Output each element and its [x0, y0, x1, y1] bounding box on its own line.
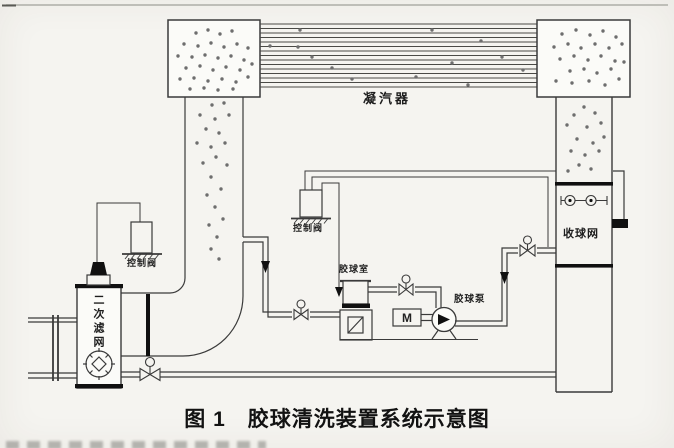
- screen-shaft: [561, 196, 607, 206]
- actuator-head: [90, 262, 107, 275]
- cutoff-text-remnant: [6, 441, 266, 448]
- scan-artifact-topline: [2, 5, 668, 6]
- pump-suction-pipe: [455, 236, 556, 326]
- ball-pump-label: 胶球泵: [454, 295, 486, 305]
- screen-signal-lines: [305, 171, 556, 247]
- control-valve-left-label: 控制阀: [127, 259, 157, 268]
- ball-injection-pipe: [243, 237, 340, 321]
- ball-screen-label: 收球网: [563, 229, 599, 240]
- chamber-outlet-pipe: [368, 275, 441, 308]
- motor-letter: M: [393, 312, 421, 324]
- condenser-label: 凝汽器: [363, 92, 411, 105]
- condenser-tube-bundle: [260, 24, 537, 87]
- secondary-filter-label: 二次滤网: [92, 294, 103, 350]
- flow-arrow-down: [335, 287, 343, 297]
- flow-arrow-down: [500, 272, 509, 284]
- control-valve-mid-label: 控制阀: [293, 224, 323, 233]
- inlet-pipes-left: [28, 315, 77, 381]
- flow-arrow-down: [261, 261, 270, 273]
- condenser-right-waterbox: [537, 20, 630, 97]
- condenser-left-waterbox: [168, 20, 260, 97]
- condenser-tubes: [260, 24, 537, 87]
- control-valve-left: [122, 222, 162, 259]
- chamber-feed-line: [322, 183, 339, 289]
- ball-chamber-label: 胶球室: [339, 265, 369, 274]
- return-pipe-bottom: [121, 358, 556, 383]
- control-valve-mid: [291, 190, 331, 224]
- screen-drive-bracket: [612, 171, 628, 228]
- figure-caption: 图 1 胶球清洗装置系统示意图: [150, 403, 524, 433]
- actuator-collar: [87, 275, 110, 285]
- diagram-canvas: [0, 0, 674, 448]
- scanned-figure: 凝汽器 控制阀 控制阀 二次滤网 胶球室 胶球泵 收球网 M 图 1 胶球清洗装…: [0, 0, 674, 448]
- ball-screen-duct: [555, 97, 628, 392]
